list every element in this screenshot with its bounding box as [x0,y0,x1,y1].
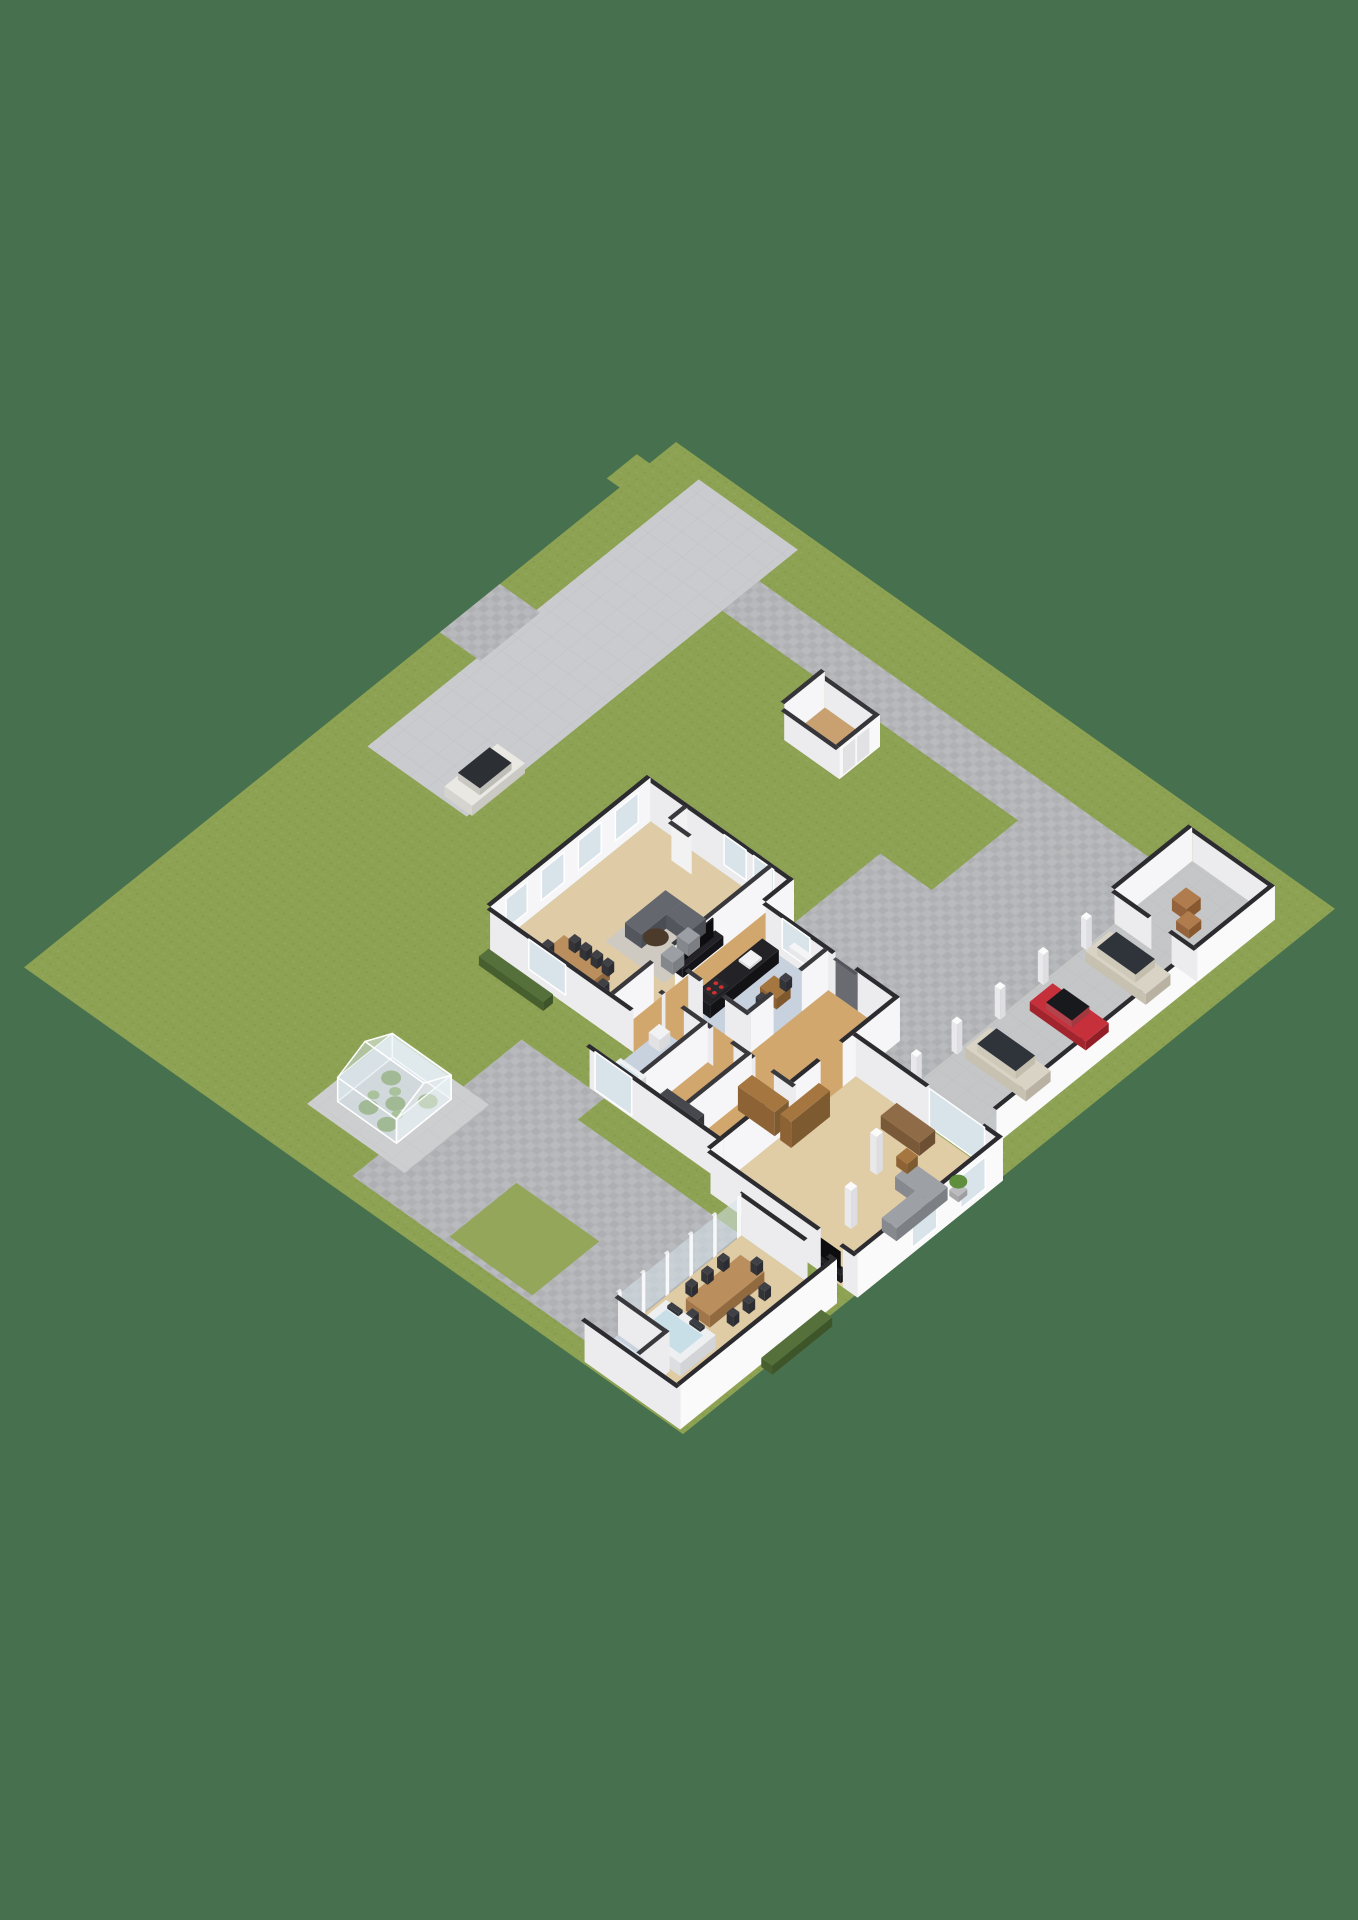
lounge-pillars [870,1133,876,1176]
coffee-table-round[interactable] [643,928,669,946]
stove-burners [706,987,711,991]
lounge-plant-foliage[interactable] [949,1175,967,1189]
annex-glass-mullions [689,1232,693,1277]
carport-pillars [957,1020,962,1054]
carport-pillars [1038,951,1044,985]
stove-burners [713,981,718,985]
carport-pillars [1043,951,1048,985]
annex-glass-mullions [642,1271,646,1316]
lounge-pillars [851,1186,857,1229]
carport-pillars [995,986,1001,1020]
carport-pillars [952,1021,958,1055]
carport-pillars [1000,986,1005,1020]
stove-burners [719,985,724,989]
annex-glass-mullions [737,1193,741,1239]
carport-pillars [1087,916,1092,950]
lounge-pillars [877,1132,883,1175]
annex-glass-mullions [666,1252,670,1297]
annex-glass-mullions [713,1213,717,1258]
floorplan-3d-viewport[interactable] [0,0,1358,1920]
stove-burners [712,991,717,995]
lounge-pillars [845,1187,851,1230]
floorplan-3d-canvas[interactable] [0,0,1358,1920]
carport-pillars [1081,916,1087,950]
corridor-wall-south [662,990,666,1033]
scene-layer [24,442,1335,1434]
